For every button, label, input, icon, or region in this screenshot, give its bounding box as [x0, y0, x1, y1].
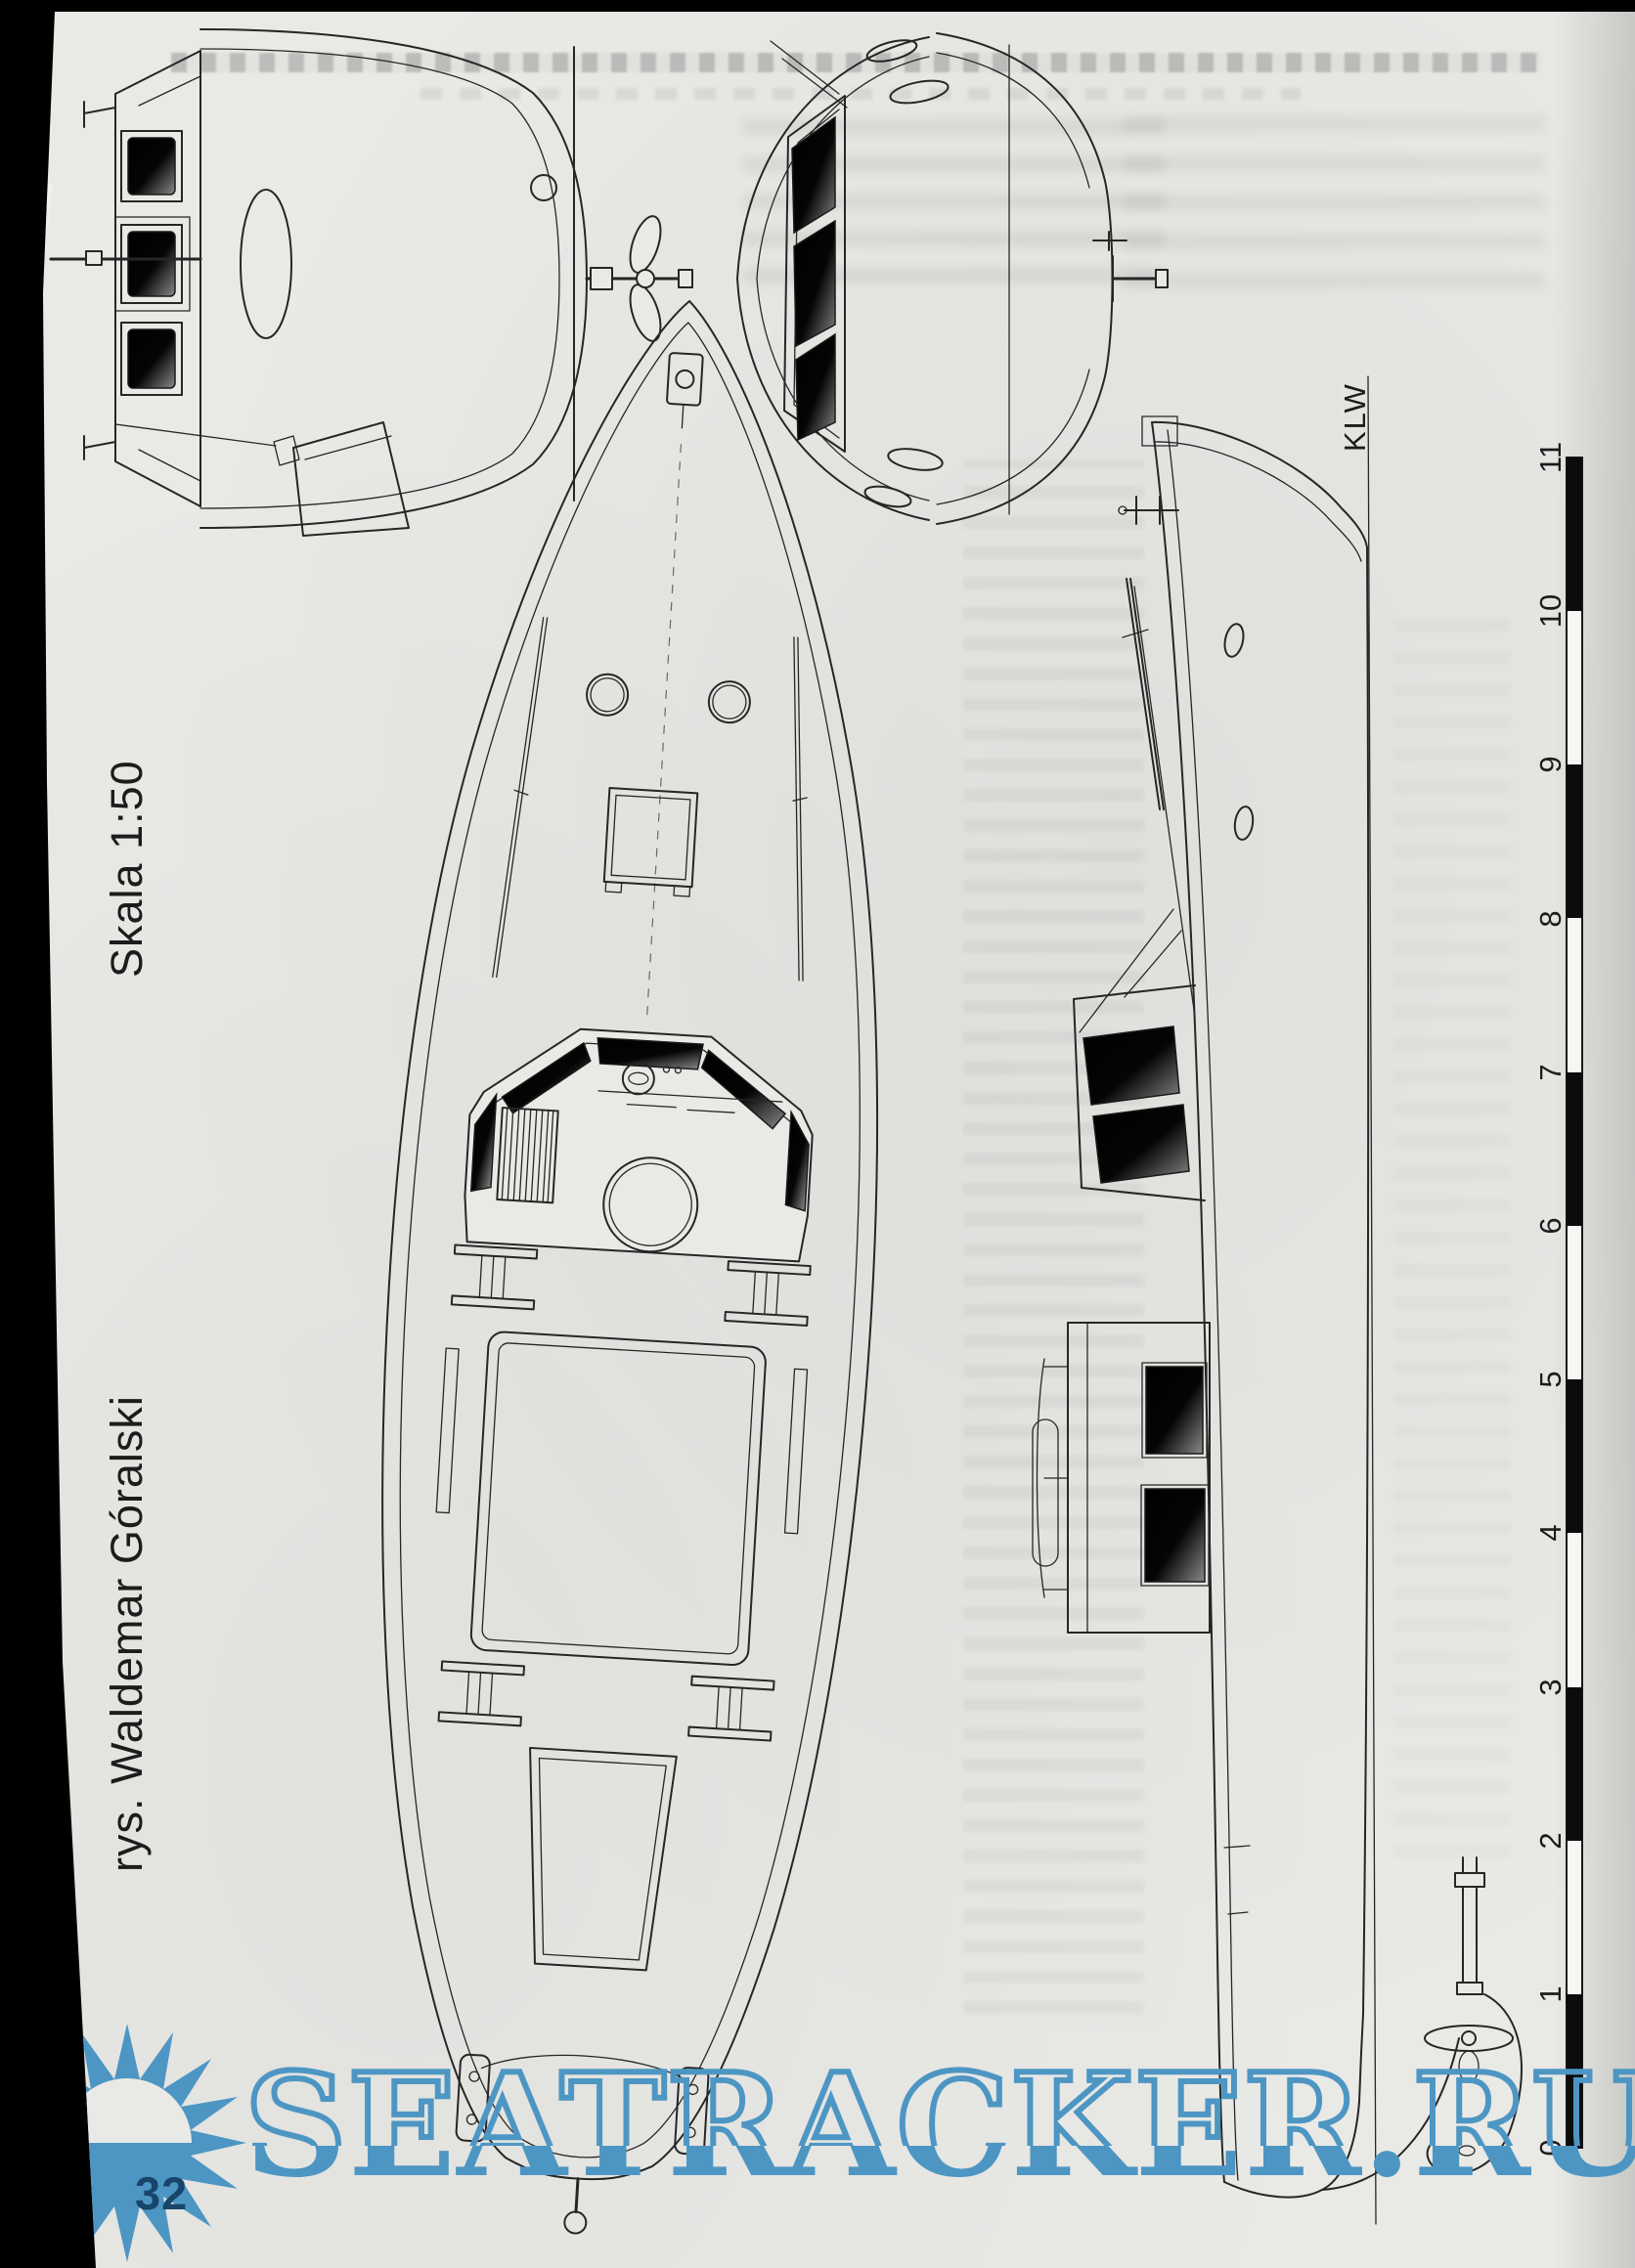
- porthole: [708, 680, 751, 723]
- ruler-tick-label: 7: [1533, 1064, 1568, 1080]
- ruler-tick-label: 3: [1533, 1679, 1568, 1695]
- deck-plan-view-drawing: [333, 286, 931, 2247]
- boat-plans-drawing: KLW: [0, 0, 1635, 2268]
- paper-page: Skala 1:50 rys. Waldemar Góralski: [0, 0, 1635, 2268]
- ruler-tick-label: 4: [1533, 1524, 1568, 1541]
- propeller-and-rudder: [1322, 1857, 1522, 2190]
- ruler-tick-label: 10: [1533, 594, 1568, 628]
- rudder-oval: [241, 190, 291, 338]
- ladder: [452, 1244, 537, 1309]
- hull-outline: [937, 33, 1113, 524]
- fore-hatch: [603, 788, 697, 896]
- waterline: [1368, 376, 1376, 2224]
- lifebuoy: [1033, 1419, 1058, 1566]
- ruler-tick-label: 5: [1533, 1371, 1568, 1387]
- bow-view-drawing: [737, 33, 1168, 524]
- stern-curve: [1224, 2053, 1361, 2198]
- wheelhouse-profile: [1074, 909, 1205, 1200]
- ladder: [725, 1261, 810, 1326]
- ruler-tick-label: 9: [1533, 756, 1568, 772]
- porthole: [531, 175, 556, 200]
- hull-outline: [200, 29, 587, 528]
- ladder: [439, 1661, 524, 1725]
- spar: [493, 616, 548, 979]
- ruler-tick-label: 11: [1533, 442, 1568, 473]
- bow-fitting: [665, 353, 702, 429]
- waterline-label: KLW: [1338, 382, 1372, 452]
- stern-view-drawing: [51, 29, 692, 536]
- stern-plate: [675, 2068, 709, 2156]
- porthole: [586, 674, 629, 717]
- ruler-tick-label: 0: [1533, 2139, 1568, 2156]
- page-number: 32: [135, 2166, 188, 2220]
- midship-cabin: [428, 1329, 809, 1668]
- wheelhouse: [463, 1023, 818, 1261]
- porthole: [1222, 623, 1247, 659]
- spar: [773, 637, 823, 981]
- stern-windows: [121, 131, 182, 395]
- ruler-tick-label: 2: [1533, 1832, 1568, 1849]
- ruler-tick-label: 6: [1533, 1217, 1568, 1234]
- keel-line: [1361, 547, 1368, 2053]
- ladder: [688, 1677, 773, 1741]
- side-profile-view-drawing: KLW: [1033, 376, 1522, 2224]
- porthole: [1233, 806, 1256, 841]
- scan-wrinkle: [0, 1525, 29, 1740]
- bow-windows: [792, 117, 835, 440]
- bow-curve: [1152, 422, 1367, 547]
- jackstaff: [1119, 497, 1178, 524]
- aft-hatch: [517, 1748, 677, 1972]
- ruler-tick-label: 8: [1533, 910, 1568, 927]
- sheer-line: [1152, 422, 1224, 2182]
- rudder: [564, 2178, 589, 2234]
- scale-ruler: 11 10 9 8 7 6 5 4 3 2 1 0: [1533, 442, 1582, 2157]
- aft-deckhouse: [1033, 1323, 1210, 1633]
- ruler-tick-label: 1: [1533, 1985, 1568, 2002]
- propeller: [587, 212, 692, 344]
